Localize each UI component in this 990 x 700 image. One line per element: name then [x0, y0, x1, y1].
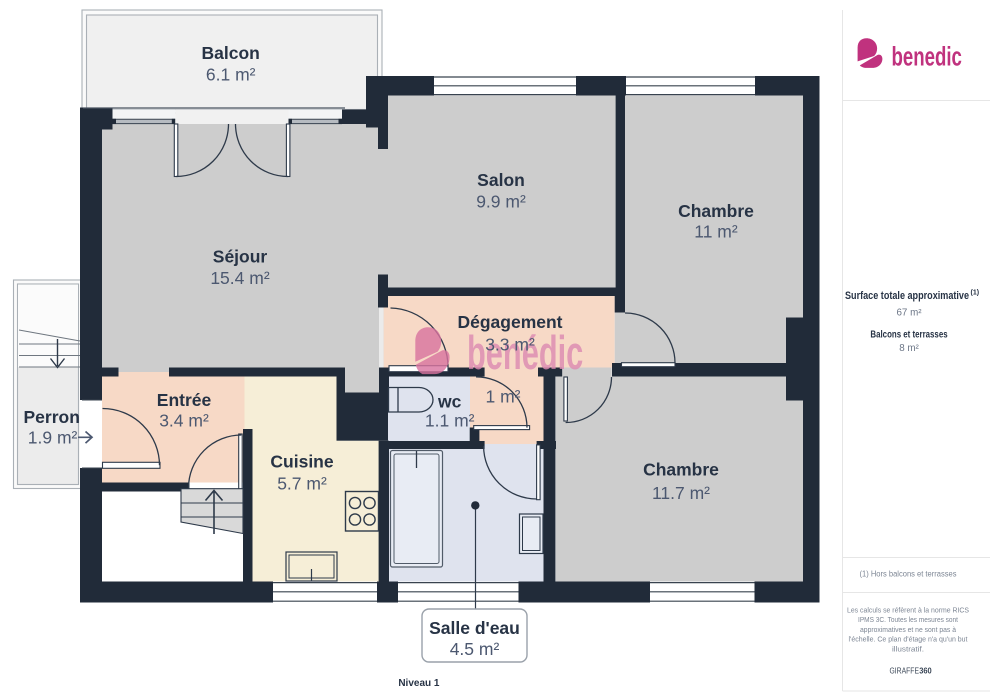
- svg-text:illustratif.: illustratif.: [892, 644, 924, 653]
- svg-text:GIRAFFE: GIRAFFE: [890, 666, 920, 676]
- svg-text:360: 360: [919, 666, 932, 676]
- svg-text:(1): (1): [971, 290, 980, 297]
- svg-text:3.4 m²: 3.4 m²: [159, 411, 209, 431]
- svg-text:Cuisine: Cuisine: [270, 451, 333, 471]
- svg-text:15.4 m²: 15.4 m²: [210, 268, 269, 288]
- svg-text:Niveau 1: Niveau 1: [398, 678, 440, 689]
- svg-text:Salon: Salon: [477, 170, 525, 190]
- svg-text:Chambre: Chambre: [643, 459, 719, 479]
- svg-text:Perron: Perron: [23, 407, 79, 427]
- svg-text:4.5 m²: 4.5 m²: [450, 639, 500, 659]
- svg-text:benedic: benedic: [892, 41, 962, 71]
- svg-text:Les calculs se réfèrent à la n: Les calculs se réfèrent à la norme RICS: [847, 606, 969, 615]
- svg-text:Surface totale approximative: Surface totale approximative: [845, 290, 969, 302]
- svg-text:11 m²: 11 m²: [694, 222, 738, 242]
- svg-text:1 m²: 1 m²: [486, 386, 521, 406]
- svg-text:Chambre: Chambre: [678, 201, 754, 221]
- svg-text:11.7 m²: 11.7 m²: [652, 483, 710, 503]
- svg-text:l'échelle. Ce plan d'étage n'a: l'échelle. Ce plan d'étage n'a qu'un but: [849, 635, 969, 644]
- svg-text:Séjour: Séjour: [213, 247, 268, 267]
- svg-text:wc: wc: [437, 392, 462, 412]
- svg-text:Salle d'eau: Salle d'eau: [429, 618, 520, 638]
- svg-text:8 m²: 8 m²: [899, 343, 919, 354]
- svg-text:Balcons et terrasses: Balcons et terrasses: [870, 329, 947, 340]
- svg-text:3.3 m²: 3.3 m²: [485, 334, 535, 354]
- svg-text:Entrée: Entrée: [157, 390, 212, 410]
- svg-text:67 m²: 67 m²: [896, 308, 922, 319]
- svg-text:IPMS 3C. Toutes les mesures so: IPMS 3C. Toutes les mesures sont: [858, 615, 959, 624]
- svg-text:Dégagement: Dégagement: [457, 312, 562, 332]
- svg-text:1.1 m²: 1.1 m²: [425, 411, 475, 431]
- svg-text:approximatives et ne sont pas: approximatives et ne sont pas à: [860, 625, 957, 634]
- svg-text:Balcon: Balcon: [202, 43, 260, 63]
- svg-text:6.1 m²: 6.1 m²: [206, 65, 256, 85]
- svg-text:5.7 m²: 5.7 m²: [277, 474, 327, 494]
- svg-text:(1) Hors balcons et terrasses: (1) Hors balcons et terrasses: [860, 570, 957, 579]
- svg-text:9.9 m²: 9.9 m²: [476, 191, 526, 211]
- svg-text:1.9 m²: 1.9 m²: [28, 428, 78, 448]
